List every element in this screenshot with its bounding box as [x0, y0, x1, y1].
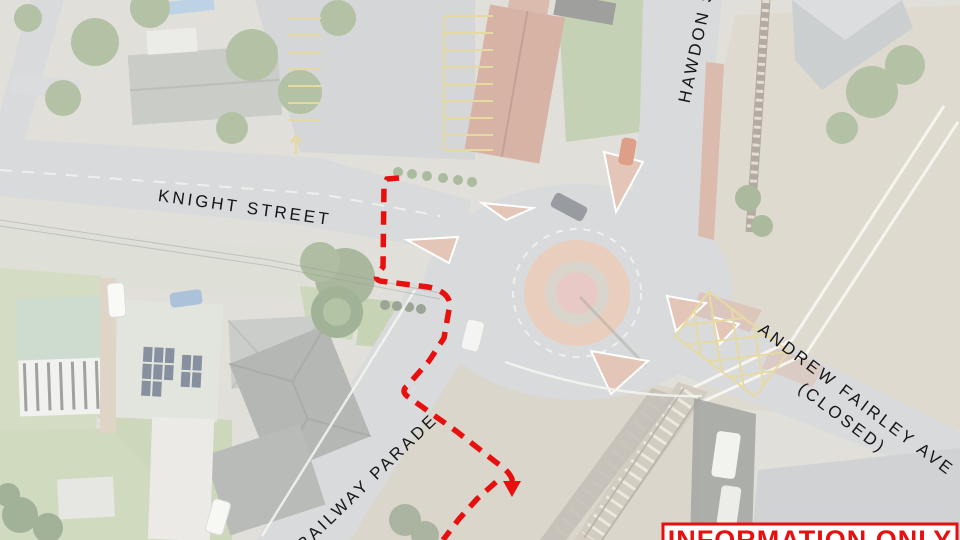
info-box-text: INFORMATION ONLY	[668, 525, 953, 540]
aerial-map-canvas: KNIGHT STREET HAWDON ST ANDREW FAIRLEY A…	[0, 0, 960, 540]
white-wash-overlay	[0, 0, 960, 540]
info-box: INFORMATION ONLY	[663, 524, 957, 540]
map-screenshot: KNIGHT STREET HAWDON ST ANDREW FAIRLEY A…	[0, 0, 960, 540]
